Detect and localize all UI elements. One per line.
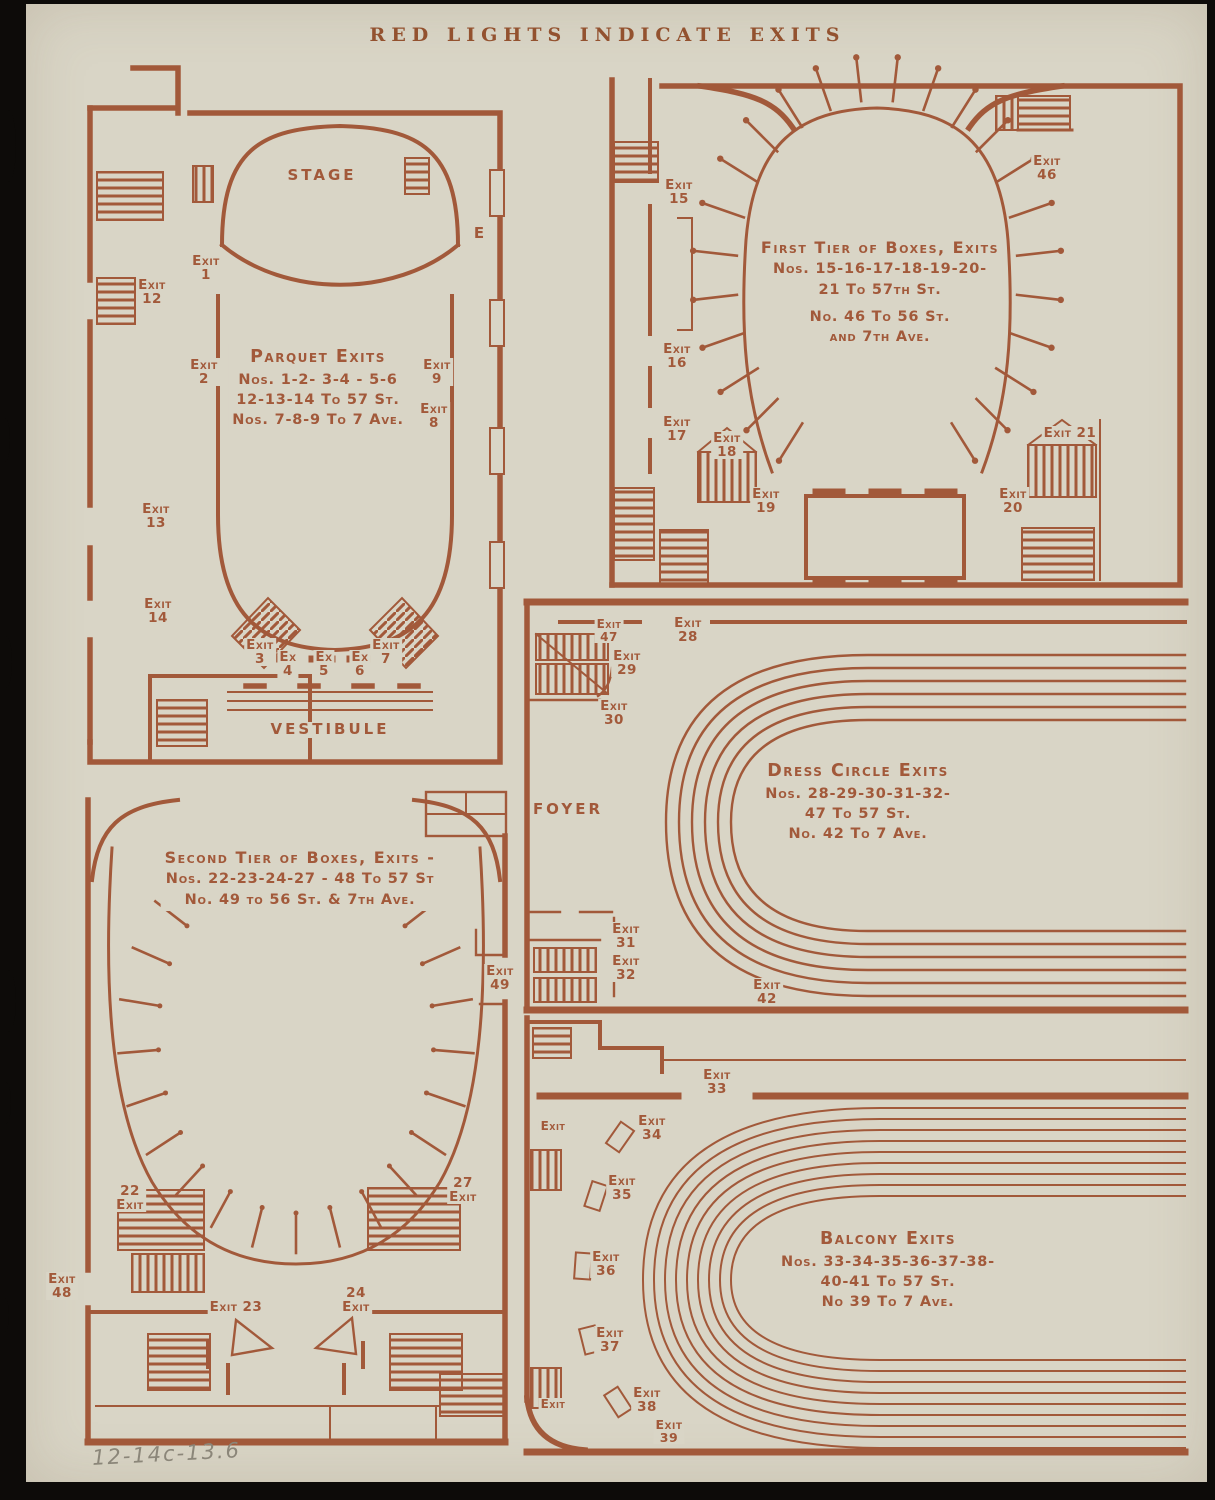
exit-label-29: Exit29 bbox=[611, 649, 643, 677]
exit-label-35: Exit35 bbox=[606, 1174, 638, 1202]
exit-label-7: Exit7 bbox=[370, 638, 402, 666]
exit-label-31: Exit31 bbox=[610, 922, 642, 950]
first-tier-exits-info: First Tier of Boxes, Exits Nos. 15-16-17… bbox=[757, 236, 1003, 349]
exit-label-17: Exit17 bbox=[661, 415, 693, 443]
exit-label-28: Exit28 bbox=[672, 616, 704, 644]
foyer-label: FOYER bbox=[531, 802, 605, 818]
exit-label-13: Exit13 bbox=[140, 502, 172, 530]
exit-label-32: Exit32 bbox=[610, 954, 642, 982]
balcony-exits-info: Balcony Exits Nos. 33-34-35-36-37-38- 40… bbox=[777, 1226, 999, 1313]
exit-label-plain-lower: Exit bbox=[539, 1398, 568, 1411]
exit-label-15: Exit15 bbox=[663, 178, 695, 206]
exit-label-19: Exit19 bbox=[750, 487, 782, 515]
exit-label-1: Exit1 bbox=[190, 254, 222, 282]
exit-label-8: Exit8 bbox=[418, 402, 450, 430]
exit-label-6: Ex6 bbox=[349, 650, 370, 678]
exit-label-22: 22Exit bbox=[114, 1184, 146, 1212]
vestibule-label: VESTIBULE bbox=[269, 722, 392, 738]
exit-label-18: Exit18 bbox=[711, 431, 743, 459]
exit-label-20: Exit20 bbox=[997, 487, 1029, 515]
stage-label: STAGE bbox=[285, 168, 358, 184]
exit-label-37: Exit37 bbox=[594, 1326, 626, 1354]
exit-label-48: Exit48 bbox=[46, 1272, 78, 1300]
second-tier-exits-info: Second Tier of Boxes, Exits - Nos. 22-23… bbox=[161, 846, 440, 911]
exit-label-16: Exit16 bbox=[661, 342, 693, 370]
exit-label-5: Ex5 bbox=[313, 650, 334, 678]
exit-label-47: Exit47 bbox=[595, 618, 624, 643]
exit-label-12: Exit12 bbox=[136, 278, 168, 306]
exit-label-33: Exit33 bbox=[701, 1068, 733, 1096]
exit-label-46: Exit46 bbox=[1031, 154, 1063, 182]
exit-label-36: Exit36 bbox=[590, 1250, 622, 1278]
exit-label-2: Exit2 bbox=[188, 358, 220, 386]
stairs-e-label: E bbox=[472, 226, 486, 242]
exit-label-34: Exit34 bbox=[636, 1114, 668, 1142]
dress-circle-exits-info: Dress Circle Exits Nos. 28-29-30-31-32- … bbox=[761, 758, 954, 845]
parquet-exits-info: Parquet Exits Nos. 1-2- 3-4 - 5-6 12-13-… bbox=[228, 344, 408, 431]
exit-label-23: Exit 23 bbox=[208, 1300, 265, 1314]
exit-label-30: Exit30 bbox=[598, 699, 630, 727]
exit-label-9: Exit9 bbox=[421, 358, 453, 386]
exit-label-39: Exit39 bbox=[654, 1418, 685, 1444]
exit-label-49: Exit49 bbox=[484, 964, 516, 992]
exit-label-14: Exit14 bbox=[142, 597, 174, 625]
exit-label-plain-upper: Exit bbox=[539, 1120, 568, 1133]
exit-label-27: 27Exit bbox=[447, 1176, 479, 1204]
exit-label-21: Exit 21 bbox=[1042, 426, 1099, 440]
exit-label-42: Exit42 bbox=[751, 978, 783, 1006]
exit-label-38: Exit38 bbox=[631, 1386, 663, 1414]
exit-label-3: Exit3 bbox=[244, 638, 276, 666]
exit-label-4: Ex4 bbox=[277, 650, 298, 678]
exit-label-24: 24Exit bbox=[340, 1286, 372, 1314]
